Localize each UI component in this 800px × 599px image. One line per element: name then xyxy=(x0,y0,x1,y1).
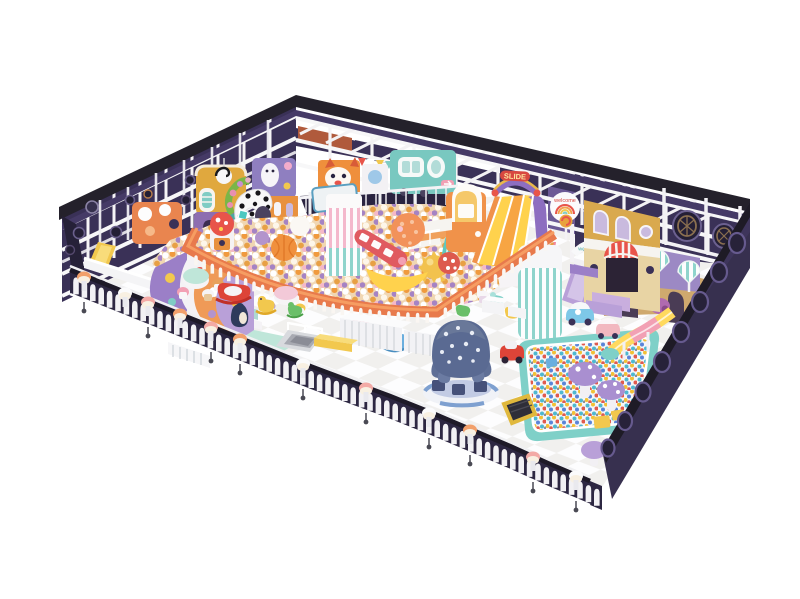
svg-text:welcome: welcome xyxy=(553,198,576,204)
svg-text:SLIDE: SLIDE xyxy=(504,171,527,181)
